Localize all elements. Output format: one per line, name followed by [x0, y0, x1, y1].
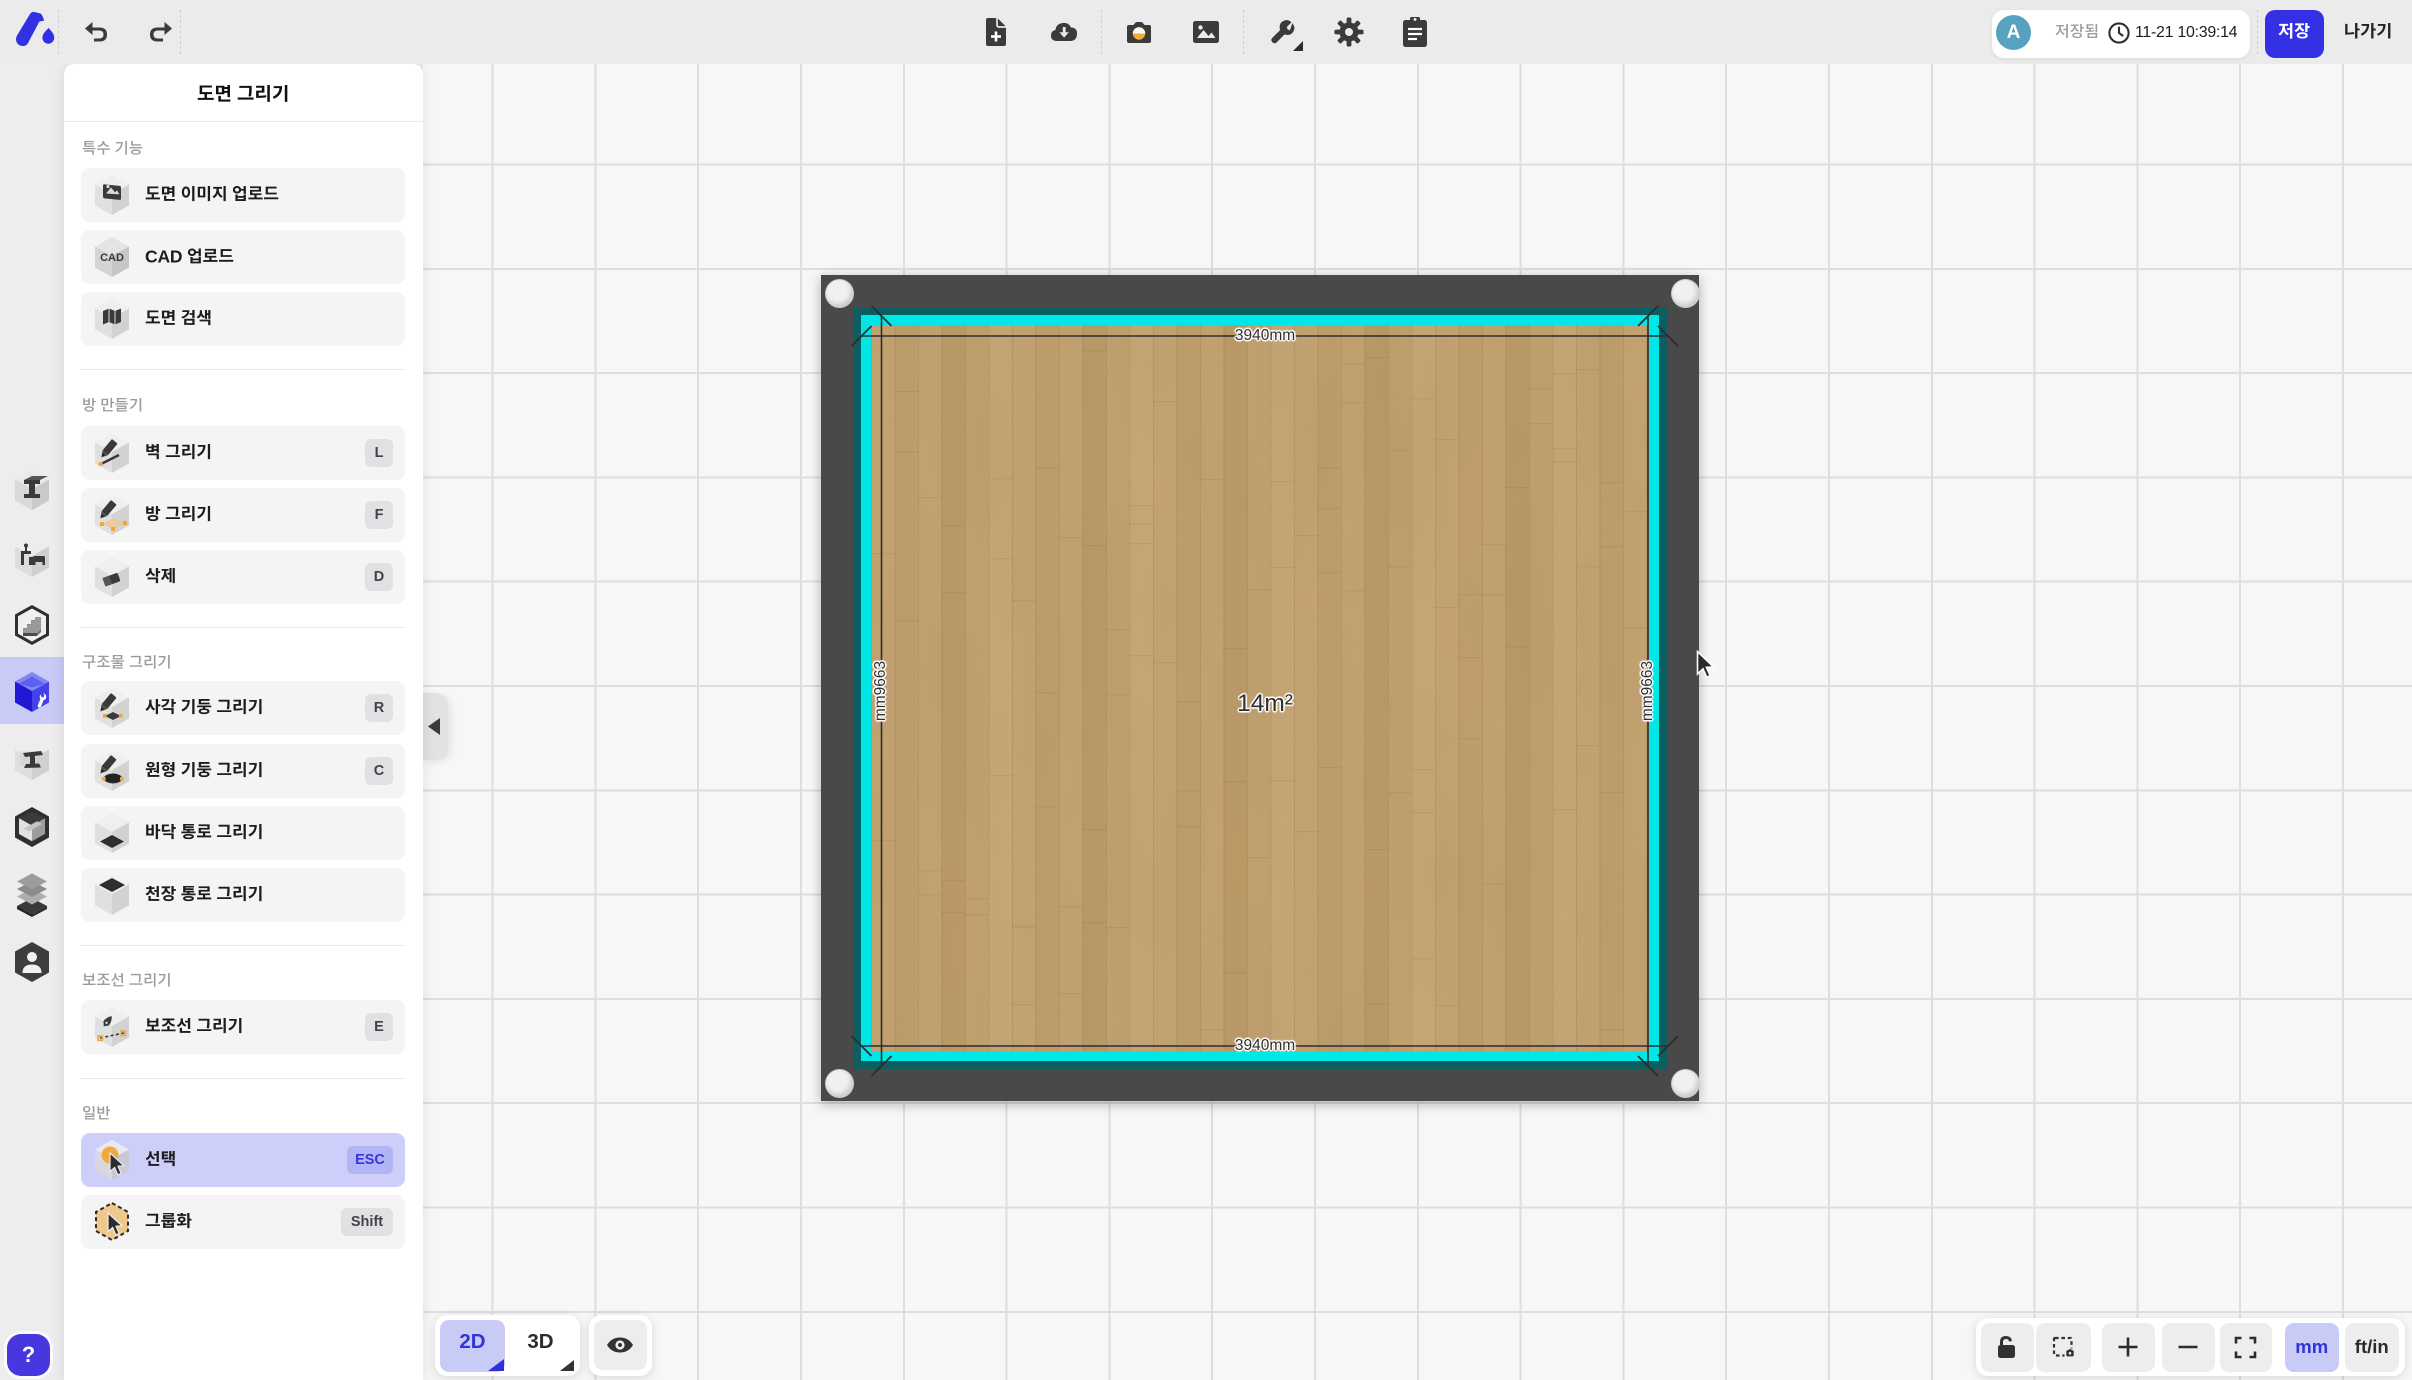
- svg-text:CAD: CAD: [100, 252, 124, 264]
